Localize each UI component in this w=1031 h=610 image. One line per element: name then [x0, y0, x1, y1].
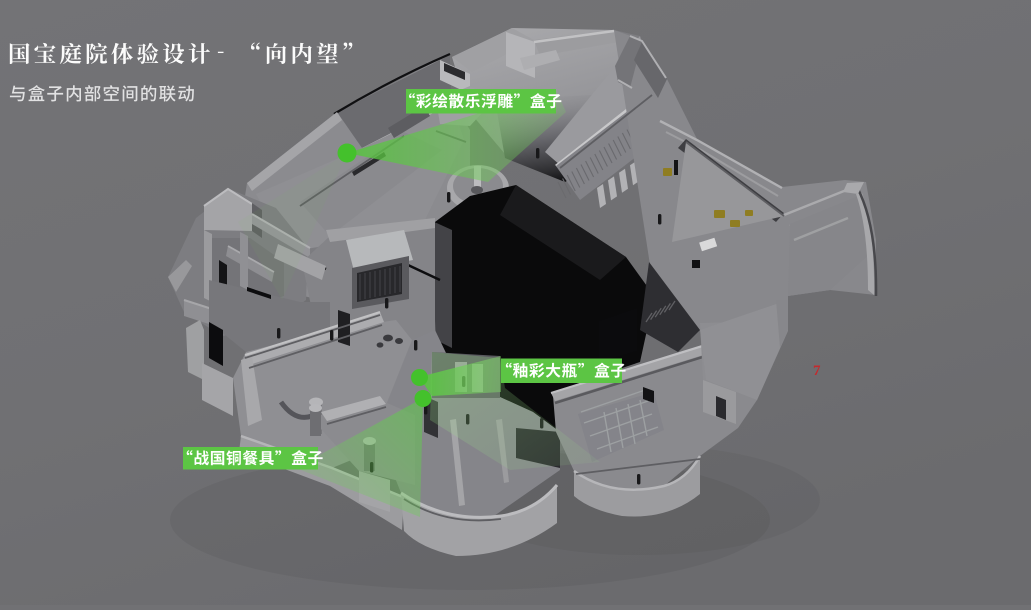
svg-text:7: 7: [813, 363, 821, 379]
